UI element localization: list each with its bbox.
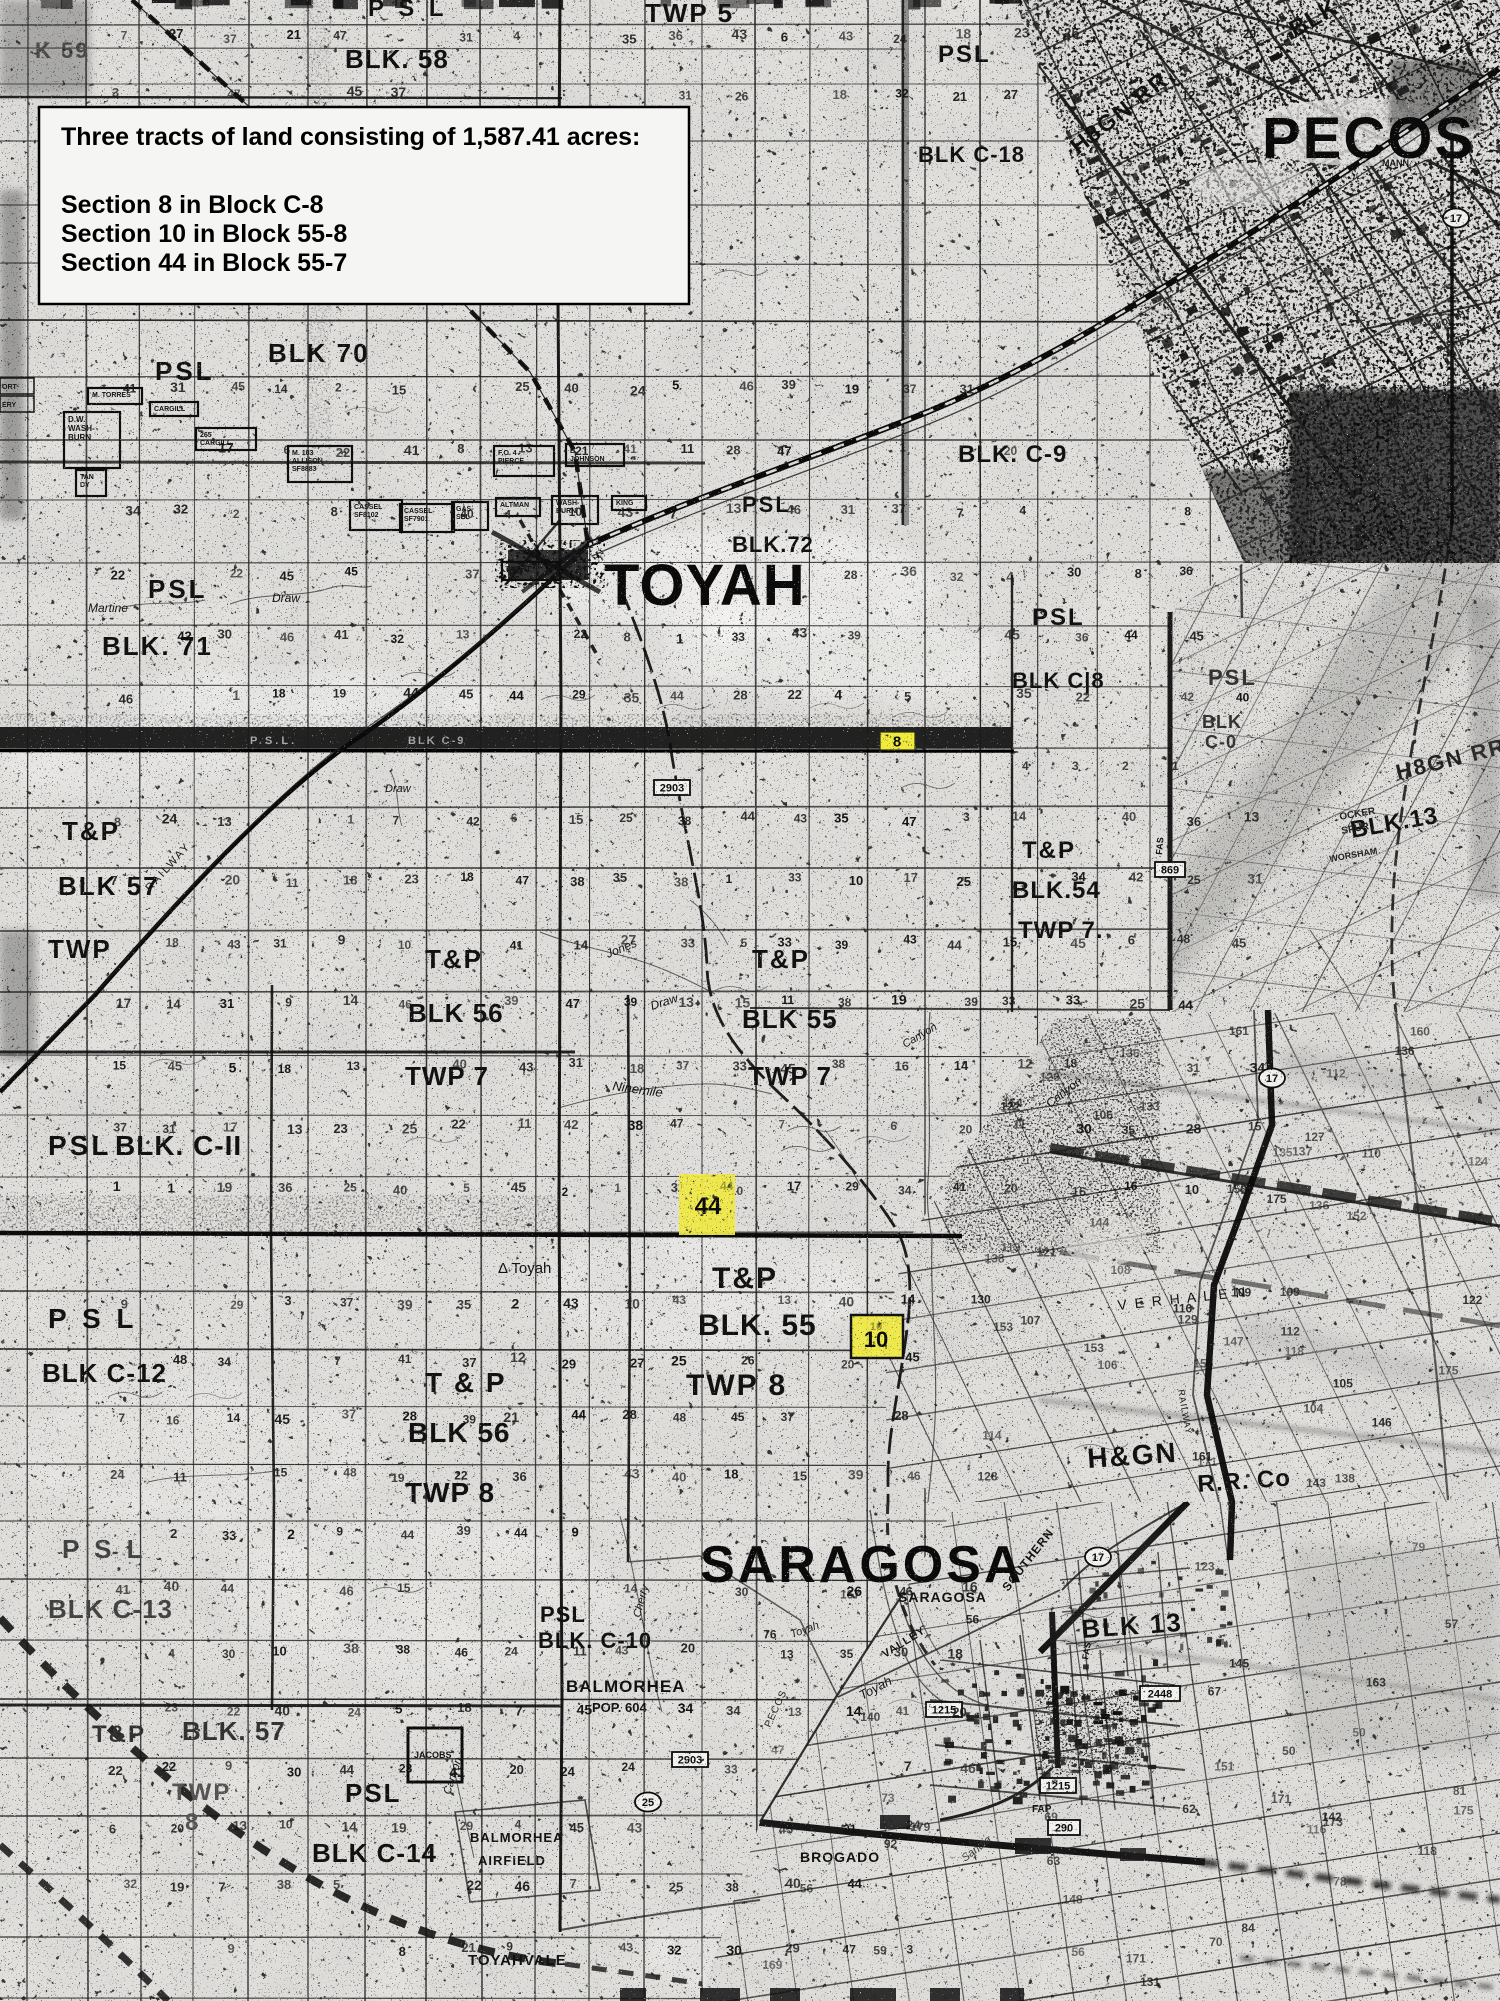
svg-text:Three tracts of land consistin: Three tracts of land consisting of 1,587…: [61, 123, 640, 151]
svg-text:Section 44 in Block 55-7: Section 44 in Block 55-7: [61, 249, 347, 277]
svg-text:Section 8 in Block C-8: Section 8 in Block C-8: [61, 191, 324, 219]
svg-text:Section 10 in Block 55-8: Section 10 in Block 55-8: [61, 220, 347, 248]
